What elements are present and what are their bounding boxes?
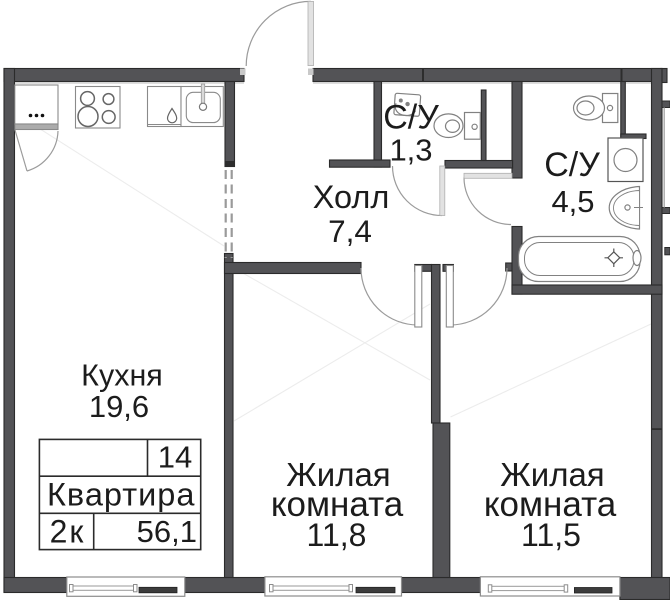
svg-text:1,3: 1,3 [389, 133, 432, 168]
svg-text:11,8: 11,8 [307, 517, 367, 553]
svg-text:19,6: 19,6 [89, 389, 149, 424]
svg-text:С/У: С/У [383, 99, 439, 137]
svg-text:Холл: Холл [313, 179, 390, 215]
svg-text:4,5: 4,5 [551, 184, 594, 219]
svg-text:2к: 2к [50, 514, 86, 550]
svg-text:7,4: 7,4 [328, 213, 372, 249]
svg-text:11,5: 11,5 [521, 517, 581, 553]
svg-text:Квартира: Квартира [47, 477, 195, 513]
svg-text:14: 14 [158, 440, 192, 475]
svg-text:Кухня: Кухня [81, 359, 163, 393]
svg-text:С/У: С/У [544, 146, 600, 184]
svg-text:56,1: 56,1 [137, 514, 197, 549]
